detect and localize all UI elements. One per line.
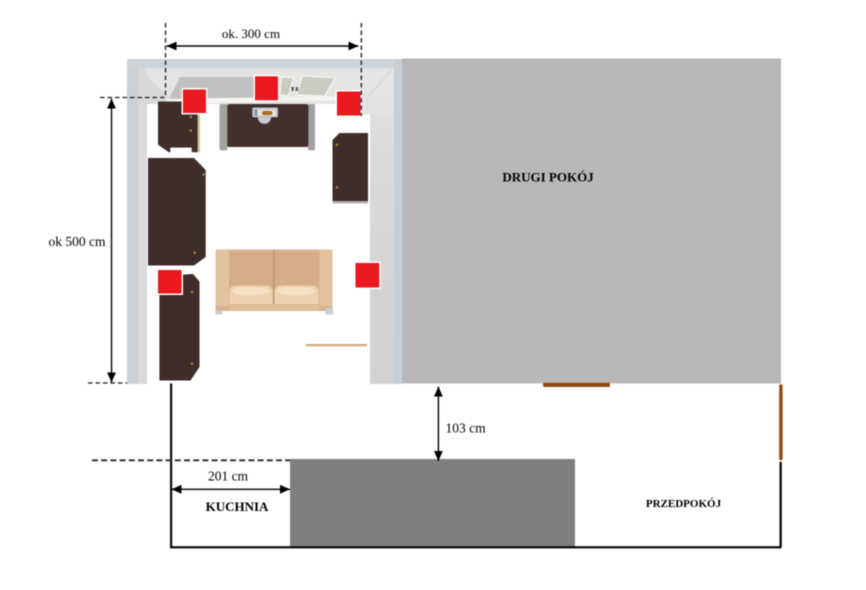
svg-text:PRZEDPOKÓJ: PRZEDPOKÓJ (646, 498, 722, 510)
svg-text:201 cm: 201 cm (208, 468, 249, 483)
svg-text:DRUGI POKÓJ: DRUGI POKÓJ (502, 170, 594, 185)
svg-text:KUCHNIA: KUCHNIA (206, 499, 269, 514)
svg-text:ok. 300 cm: ok. 300 cm (222, 26, 280, 41)
svg-text:ok 500 cm: ok 500 cm (49, 234, 106, 249)
svg-text:103 cm: 103 cm (446, 421, 487, 436)
